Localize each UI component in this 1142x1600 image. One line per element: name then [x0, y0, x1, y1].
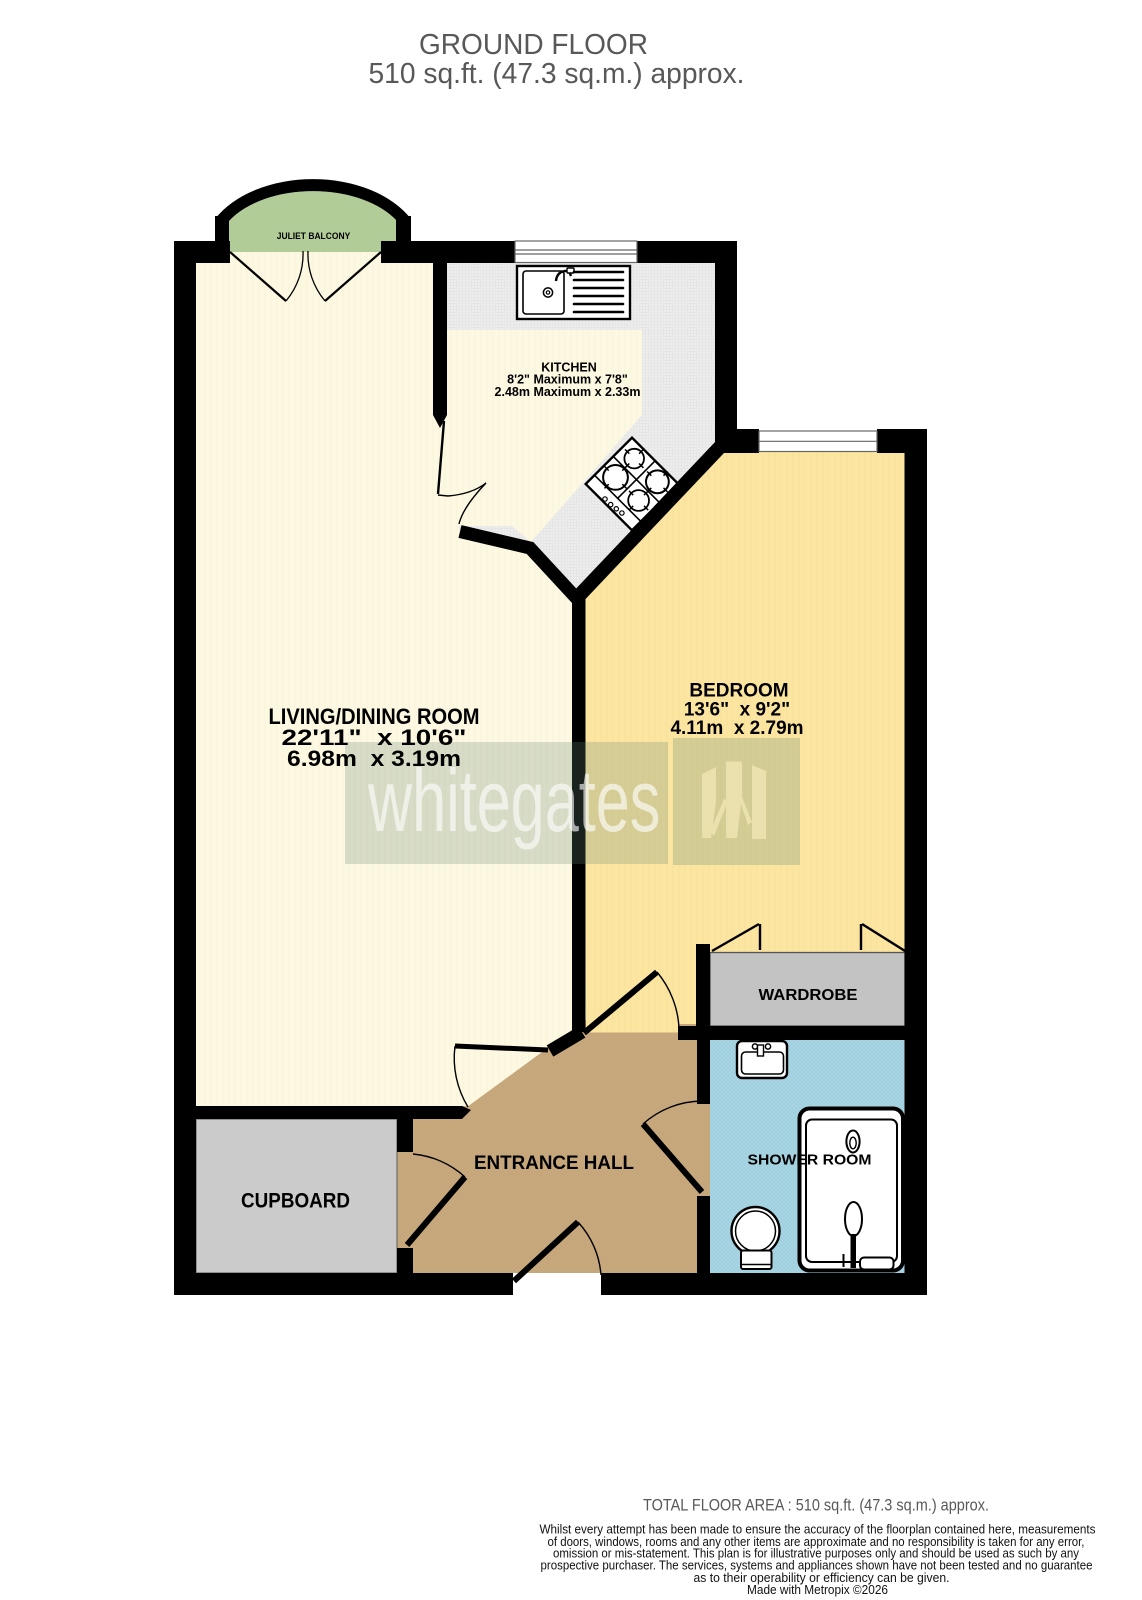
svg-text:ENTRANCE HALL: ENTRANCE HALL: [474, 1152, 634, 1174]
svg-text:CUPBOARD: CUPBOARD: [241, 1190, 350, 1213]
svg-text:510 sq.ft. (47.3 sq.m.) approx: 510 sq.ft. (47.3 sq.m.) approx.: [369, 58, 745, 90]
svg-text:Made with Metropix ©2026: Made with Metropix ©2026: [747, 1583, 888, 1597]
svg-text:6.98m x 3.19m: 6.98m x 3.19m: [287, 746, 461, 771]
svg-text:BEDROOM: BEDROOM: [689, 681, 788, 702]
svg-text:JULIET BALCONY: JULIET BALCONY: [277, 231, 351, 241]
svg-text:SHOWER ROOM: SHOWER ROOM: [748, 1152, 872, 1169]
svg-text:TOTAL FLOOR AREA : 510 sq.ft.: TOTAL FLOOR AREA : 510 sq.ft. (47.3 sq.m…: [643, 1496, 989, 1515]
svg-text:2.48m Maximum x 2.33m: 2.48m Maximum x 2.33m: [495, 385, 641, 399]
svg-text:4.11m x 2.79m: 4.11m x 2.79m: [670, 718, 803, 739]
svg-text:GROUND FLOOR: GROUND FLOOR: [419, 29, 648, 61]
svg-text:WARDROBE: WARDROBE: [759, 987, 858, 1004]
